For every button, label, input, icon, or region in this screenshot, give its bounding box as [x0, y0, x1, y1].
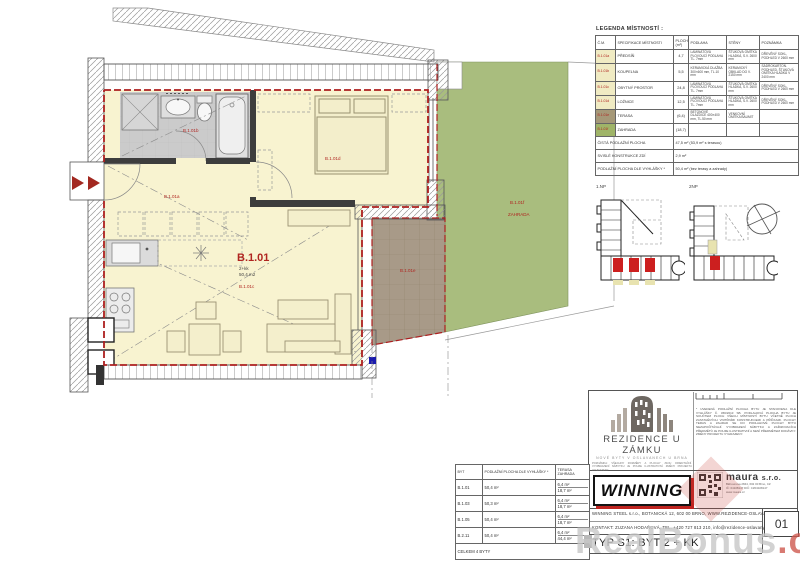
- apartment-row: B.2.11 50,4 m² 6,4 m²44,4 m²: [456, 528, 590, 544]
- apt-area: 50,4 m²: [483, 528, 556, 544]
- watermark-red: .cz: [777, 520, 800, 561]
- legend-row: B.1.01c OBYTNÝ PROSTOR 24,8 LAMINÁTOVÁ P…: [596, 81, 799, 95]
- bathtub-icon: [216, 94, 248, 158]
- shower-icon: [122, 94, 158, 130]
- titleblock-border: [588, 508, 798, 509]
- drawing-sheet: B.1.01b B.1.01a B.1.01d B.1.01 2+kk 50,4…: [0, 0, 800, 564]
- floor-plan: [0, 0, 640, 410]
- legend-header: POZNÁMKA: [760, 36, 799, 50]
- room-walls: KERAMICKÝ OBKLAD DO V. 2150 mm: [727, 64, 760, 82]
- room-walls: ŠTUKOVÁ OMÍTKA HLADKÁ, S.V. 2600 mm: [727, 50, 760, 64]
- room-name: TERASA: [616, 109, 674, 123]
- room-label-predsin: B.1.01a: [164, 194, 180, 199]
- room-floor: LAMINÁTOVÁ PLOVOUCÍ PODLAHA TL. 7mm: [689, 50, 727, 64]
- room-walls: ŠTUKOVÁ OMÍTKA HLADKÁ, S.V. 2600 mm: [727, 81, 760, 95]
- room-label-terasa: B.1.01e: [400, 268, 416, 273]
- room-name: KOUPELNA: [616, 64, 674, 82]
- rezidence-logo: REZIDENCE U ZÁMKU NOVÉ BYTY V OSLAVANECH…: [592, 394, 692, 468]
- room-label-loznice: B.1.01d: [325, 156, 341, 161]
- rezidence-logo-icon: [607, 394, 677, 434]
- toilet-icon: [197, 96, 212, 121]
- unit-type-label: 2+kk: [239, 266, 249, 271]
- apt-area: 50,4 m²: [483, 512, 556, 528]
- legend-row: B.1.01f ZAHRADA (18,7): [596, 123, 799, 136]
- legend-row: B.1.01b KOUPELNA 5,5 KERAMICKÁ DLAŽBA 30…: [596, 64, 799, 82]
- room-id: B.1.01e: [596, 109, 616, 123]
- winning-logo-text: WINNING: [601, 481, 684, 501]
- garden-area: [437, 62, 614, 340]
- room-id: B.1.01b: [596, 64, 616, 82]
- adjacent-building-hatch: [113, 8, 434, 62]
- legend-table: Č.M. SPECIFIKACE MÍSTNOSTI PLOCHA (m²) P…: [595, 35, 799, 176]
- apts-header: TERASA ZAHRADA: [556, 465, 590, 480]
- room-name: OBYTNÝ PROSTOR: [616, 81, 674, 95]
- legend-summary-row: PODLAŽNÍ PLOCHA DLE VYHLÁŠKY * 50,4 m² (…: [596, 162, 799, 175]
- bed-icon: [315, 96, 388, 174]
- apts-header: PODLAŽNÍ PLOCHA DLE VYHLÁŠKY *: [483, 465, 556, 480]
- watermark-gray: RealBonus: [575, 520, 777, 561]
- legend-summary-row: ČISTÁ PODLAŽNÍ PLOCHA 47,5 m² (53,9 m² s…: [596, 136, 799, 149]
- apt-id: B.1.03: [456, 496, 483, 512]
- room-label-obytny: B.1.01c: [239, 284, 254, 289]
- overview-label-2np: 2NP: [689, 184, 698, 189]
- room-floor: BETONOVÉ DLAŽDICE 400×400 mm, TL.50 mm: [689, 109, 727, 123]
- room-note: DŘEVĚNÝ SOKL, PODHLED V 2600 mm: [760, 81, 799, 95]
- room-id: B.1.01a: [596, 50, 616, 64]
- room-area: 24,8: [674, 81, 689, 95]
- room-floor: [689, 123, 727, 136]
- room-id: B.1.01f: [596, 123, 616, 136]
- room-area: 12,5: [674, 95, 689, 109]
- apt-area: 50,4 m²: [483, 480, 556, 496]
- apts-footer: CELKEM 4 BYTY: [456, 544, 590, 560]
- legend-header: STĚNY: [727, 36, 760, 50]
- room-floor: LAMINÁTOVÁ PLOVOUCÍ PODLAHA TL. 7mm: [689, 95, 727, 109]
- room-area: 5,5: [674, 64, 689, 82]
- overview-label-1np: 1.NP: [596, 184, 606, 189]
- apartment-row: B.1.05 50,4 m² 6,4 m²18,7 m²: [456, 512, 590, 528]
- legend-header: PLOCHA (m²): [674, 36, 689, 50]
- summary-label: ČISTÁ PODLAŽNÍ PLOCHA: [596, 136, 674, 149]
- compass-icon: [740, 198, 784, 242]
- unit-area-label: 50,4 m2: [239, 272, 255, 277]
- room-id: B.1.01d: [596, 95, 616, 109]
- room-note: DŘEVĚNÝ SOKL, PODHLED V 2600 mm: [760, 50, 799, 64]
- room-walls: ŠTUKOVÁ OMÍTKA HLADKÁ, S.V. 2600 mm: [727, 95, 760, 109]
- apt-id: B.1.01: [456, 480, 483, 496]
- room-note: [760, 109, 799, 123]
- room-walls: [727, 123, 760, 136]
- summary-value: 2,9 m²: [674, 149, 799, 162]
- highlighted-units: [613, 258, 655, 272]
- apt-id: B.2.11: [456, 528, 483, 544]
- summary-value: 50,4 m² (bez terasy a zahrady): [674, 162, 799, 175]
- legend-header: PODLAHA: [689, 36, 727, 50]
- utility-marker: [369, 357, 376, 364]
- bathroom: [120, 92, 250, 161]
- terrace-area: [372, 218, 445, 345]
- room-note: [760, 123, 799, 136]
- room-name: PŘEDSÍŇ: [616, 50, 674, 64]
- room-floor: LAMINÁTOVÁ PLOVOUCÍ PODLAHA TL. 7mm: [689, 81, 727, 95]
- summary-value: 47,5 m² (53,9 m² s terasou): [674, 136, 799, 149]
- summary-label: SVISLÉ KONSTRUKCE ZDÍ: [596, 149, 674, 162]
- legend-header: Č.M.: [596, 36, 616, 50]
- room-floor: KERAMICKÁ DLAŽBA 300×600 mm, TL.10 mm: [689, 64, 727, 82]
- winning-logo: WINNING: [593, 475, 691, 506]
- room-area: 4,7: [674, 50, 689, 64]
- site-axis-lines: [372, 335, 448, 398]
- apts-header: BYT: [456, 465, 483, 480]
- overview-plan-1np: [593, 194, 685, 294]
- room-label-zahrada: ZAHRADA: [508, 212, 530, 217]
- room-label-zahrada-id: B.1.01f: [510, 200, 524, 205]
- room-name: LOŽNICE: [616, 95, 674, 109]
- apt-garden: 18,7 m²: [558, 503, 588, 509]
- unit-label: B.1.01: [237, 252, 269, 264]
- room-walls: VENKOVNÍ OMÍTKA BAUMIT: [727, 109, 760, 123]
- room-name: ZAHRADA: [616, 123, 674, 136]
- apt-garden: 18,7 m²: [558, 487, 588, 493]
- legend-summary-row: SVISLÉ KONSTRUKCE ZDÍ 2,9 m²: [596, 149, 799, 162]
- summary-label: PODLAŽNÍ PLOCHA DLE VYHLÁŠKY *: [596, 162, 674, 175]
- scale-bar: [694, 390, 786, 406]
- washbasin-icon: [161, 94, 195, 119]
- company-address-line: WINNING STEEL s.r.o., BOTANICKÁ 12, 602 …: [592, 511, 779, 516]
- room-note: SÁDROKARTON. PODHLED, ŠTUKOVÁ OMÍTKA HLA…: [760, 64, 799, 82]
- apartment-row: B.1.03 50,3 m² 6,4 m²18,7 m²: [456, 496, 590, 512]
- apt-id: B.1.05: [456, 512, 483, 528]
- apt-area: 50,3 m²: [483, 496, 556, 512]
- legend-row: B.1.01d LOŽNICE 12,5 LAMINÁTOVÁ PLOVOUCÍ…: [596, 95, 799, 109]
- room-note: DŘEVĚNÝ SOKL, PODHLED V 2600 mm: [760, 95, 799, 109]
- room-id: B.1.01c: [596, 81, 616, 95]
- rezidence-note: POZNÁMKA: VŠECHNY ROZMĚRY A PLOCHY JSOU …: [592, 462, 692, 472]
- apartment-row: B.1.01 50,4 m² 6,4 m²18,7 m²: [456, 480, 590, 496]
- highlighted-unit: [710, 256, 720, 270]
- legend-header: SPECIFIKACE MÍSTNOSTI: [616, 36, 674, 50]
- rezidence-title: REZIDENCE U ZÁMKU: [592, 434, 692, 456]
- watermark: RealBonus.cz: [575, 520, 800, 562]
- room-area: (6,4): [674, 109, 689, 123]
- room-label-koupelna: B.1.01b: [183, 128, 199, 133]
- apartments-table: BYT PODLAŽNÍ PLOCHA DLE VYHLÁŠKY * TERAS…: [455, 464, 590, 560]
- legend-row: B.1.01e TERASA (6,4) BETONOVÉ DLAŽDICE 4…: [596, 109, 799, 123]
- maura-sro: s.r.o.: [762, 475, 781, 482]
- legend-title: LEGENDA MÍSTNOSTÍ :: [596, 26, 663, 32]
- legend-row: B.1.01a PŘEDSÍŇ 4,7 LAMINÁTOVÁ PLOVOUCÍ …: [596, 50, 799, 64]
- room-area: (18,7): [674, 123, 689, 136]
- rezidence-subtitle: NOVÉ BYTY V OSLAVANECH U BRNA: [592, 456, 692, 460]
